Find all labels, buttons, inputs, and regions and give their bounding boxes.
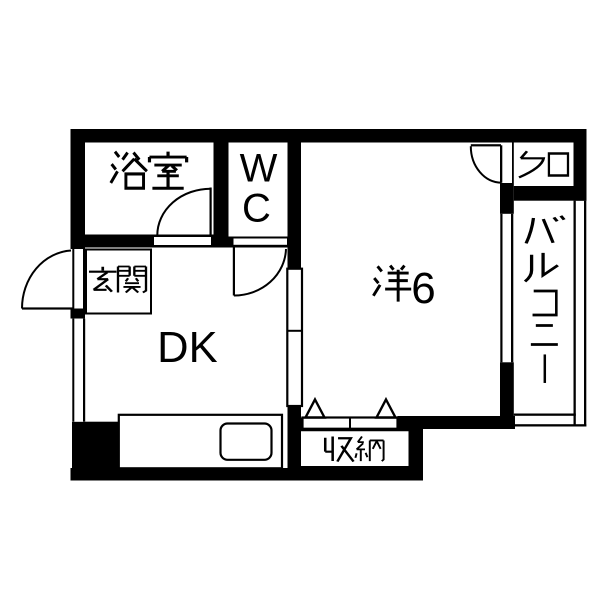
svg-text:6: 6	[411, 264, 435, 313]
svg-text:C: C	[242, 187, 271, 231]
svg-text:W: W	[240, 147, 278, 191]
svg-text:DK: DK	[157, 324, 217, 372]
